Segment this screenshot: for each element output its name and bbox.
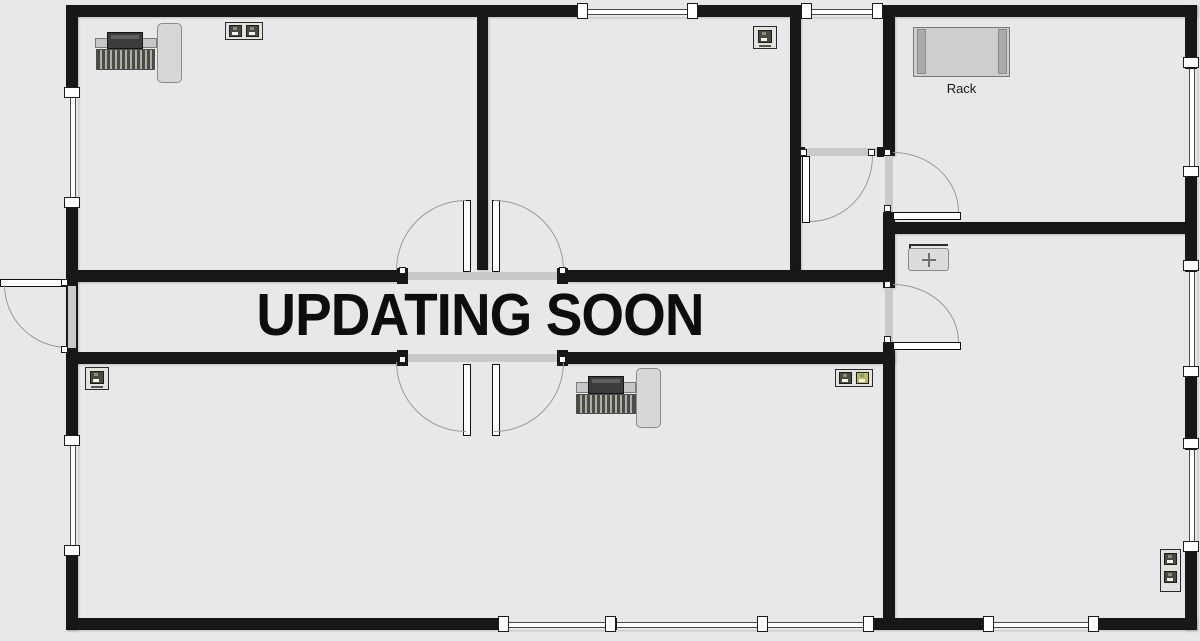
window-cap — [801, 3, 812, 19]
door-hinge — [884, 149, 891, 156]
door-opening-corridor-bottom — [408, 354, 557, 362]
window-cap — [872, 3, 883, 19]
window-cap — [605, 616, 616, 632]
network-jack-double-icon — [225, 22, 263, 40]
window — [812, 5, 873, 17]
door-hinge — [559, 356, 566, 363]
switch-icon — [908, 248, 949, 271]
door-opening-vestibule — [805, 148, 877, 156]
door-hinge — [399, 356, 406, 363]
corridor-bottom-wall-right — [567, 352, 895, 364]
rack-label: Rack — [913, 81, 1010, 96]
door-arc — [893, 284, 959, 342]
main-right-wall-upper — [883, 17, 895, 156]
rj45-socket-icon — [758, 30, 772, 43]
window-cap — [1183, 541, 1199, 552]
divider-wall-vestibule — [790, 17, 801, 270]
monitor-icon — [588, 376, 624, 394]
door-hinge — [559, 267, 566, 274]
window-cap — [64, 545, 80, 556]
window-cap — [1088, 616, 1099, 632]
window-cap — [687, 3, 698, 19]
rj45-socket-icon — [246, 25, 259, 37]
window-cap — [1183, 438, 1199, 449]
network-jack-double-icon — [835, 369, 873, 387]
window-cap — [64, 435, 80, 446]
rj45-socket-icon — [1164, 553, 1177, 565]
rack-room-south-wall — [895, 222, 1185, 234]
main-right-wall-lower — [883, 342, 895, 618]
window — [588, 5, 687, 17]
window-cap — [863, 616, 874, 632]
vestibule-wall-post-right — [877, 147, 884, 157]
window — [617, 618, 757, 630]
corridor-top-wall-left — [66, 270, 398, 282]
desk-icon — [157, 23, 182, 83]
door-opening-west-exit — [68, 286, 76, 348]
switch-arrows — [928, 253, 930, 267]
door-panel — [802, 156, 810, 223]
window — [768, 618, 863, 630]
door-hinge — [800, 149, 807, 156]
door-arc — [396, 200, 466, 270]
network-jack-single-icon — [85, 367, 109, 390]
main-right-wall-middle — [883, 212, 895, 288]
door-arc — [893, 152, 959, 212]
window-cap — [1183, 166, 1199, 177]
window-cap — [498, 616, 509, 632]
switch-cable — [909, 244, 948, 246]
window — [1185, 272, 1197, 366]
window-cap — [1183, 260, 1199, 271]
door-arc — [396, 362, 466, 432]
rack-rail — [998, 29, 1007, 74]
door-panel — [893, 342, 961, 350]
rj45-socket-icon — [229, 25, 242, 37]
network-jack-double-vertical-icon — [1160, 549, 1181, 592]
window-cap — [64, 197, 80, 208]
divider-wall-top-left-rooms — [477, 17, 488, 270]
corridor-bottom-wall-left — [66, 352, 398, 364]
rj45-socket-icon — [1164, 571, 1177, 583]
window-cap — [983, 616, 994, 632]
keyboard-icon — [96, 49, 155, 70]
door-hinge — [884, 205, 891, 212]
updating-soon-text: UPDATING SOON — [256, 286, 703, 345]
window-cap — [1183, 366, 1199, 377]
window-cap — [577, 3, 588, 19]
window — [509, 618, 606, 630]
window — [1185, 450, 1197, 541]
rack-rail — [917, 29, 926, 74]
door-arc — [4, 285, 68, 348]
keyboard-icon — [576, 394, 636, 414]
window-cap — [1183, 57, 1199, 68]
window-cap — [64, 87, 80, 98]
jack-mark — [759, 45, 771, 47]
door-arc — [494, 200, 564, 270]
rj45-socket-icon — [839, 372, 852, 384]
window — [1185, 69, 1197, 166]
door-hinge — [61, 346, 68, 353]
network-jack-single-icon — [753, 26, 777, 49]
rj45-socket-icon — [856, 372, 869, 384]
desk-icon — [636, 368, 661, 428]
door-hinge — [868, 149, 875, 156]
door-hinge — [61, 279, 68, 286]
rj45-socket-icon — [90, 371, 104, 384]
window-cap — [757, 616, 768, 632]
monitor-icon — [107, 32, 143, 49]
door-opening-rack-room — [885, 156, 893, 212]
door-hinge — [399, 267, 406, 274]
window — [66, 446, 78, 545]
door-hinge — [884, 336, 891, 343]
window — [994, 618, 1088, 630]
door-opening-corridor-top — [408, 272, 557, 280]
corridor-top-wall-right — [567, 270, 883, 282]
floor-plan: Rack UPDATING SOON — [0, 0, 1200, 641]
jack-mark — [91, 386, 103, 388]
door-hinge — [884, 281, 891, 288]
door-opening-right-room — [885, 288, 893, 342]
door-arc — [810, 156, 873, 222]
rack-icon — [913, 27, 1010, 77]
door-panel — [893, 212, 961, 220]
door-arc — [494, 362, 564, 432]
window — [66, 98, 78, 197]
